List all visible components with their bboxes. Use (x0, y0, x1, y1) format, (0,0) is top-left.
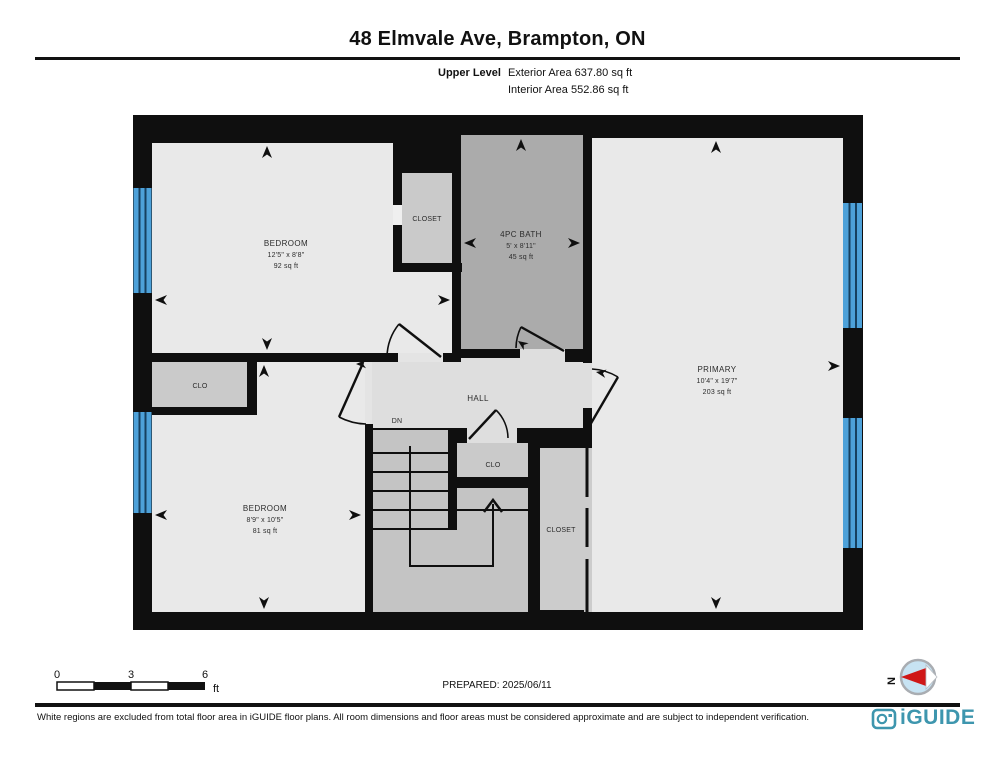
primary-dims: 10'4" x 19'7" (697, 378, 738, 385)
clo-stairs-name: CLO (486, 462, 501, 469)
bedroom1-name: BEDROOM (264, 239, 308, 248)
closet2-name: CLOSET (546, 527, 576, 534)
room-clo-stairs (457, 443, 528, 477)
room-hall (372, 358, 583, 428)
room-bedroom1 (152, 143, 393, 353)
room-bedroom2-strip (257, 362, 365, 415)
window-left-bottom (134, 412, 152, 513)
bath-name: 4PC BATH (500, 230, 542, 239)
scale-unit: ft (213, 683, 219, 695)
primary-area: 203 sq ft (703, 389, 732, 396)
window-left-top (134, 188, 152, 293)
compass-north-label: N (886, 677, 898, 685)
clo-bedroom2-name: CLO (193, 383, 208, 390)
footer-divider (35, 703, 960, 707)
scale-3: 3 (128, 669, 134, 681)
iguide-logo: iGUIDE (871, 706, 975, 730)
floor-plan: BEDROOM 12'5" x 8'8" 92 sq ft CLOSET 4PC… (0, 0, 995, 768)
floorplan-page: 48 Elmvale Ave, Brampton, ON Upper Level… (0, 0, 995, 768)
iguide-camera-icon (871, 706, 897, 730)
disclaimer-text: White regions are excluded from total fl… (37, 712, 809, 723)
bedroom1-dims: 12'5" x 8'8" (268, 252, 305, 259)
primary-name: PRIMARY (697, 365, 736, 374)
window-right-top (843, 203, 862, 328)
room-bath (461, 135, 583, 349)
door-opening-bedroom2 (365, 360, 372, 424)
prepared-date: PREPARED: 2025/06/11 (442, 680, 552, 691)
bedroom1-area: 92 sq ft (274, 263, 299, 270)
window-right-bottom (843, 418, 862, 548)
scale-0: 0 (54, 669, 60, 681)
iguide-brand-text: iGUIDE (900, 706, 975, 730)
hall-name: HALL (467, 394, 489, 403)
scale-bar: 0 3 6 ft (54, 669, 219, 695)
room-bedroom2 (152, 415, 365, 612)
bedroom2-dims: 8'9" x 10'5" (247, 517, 284, 524)
room-bedroom1-nook (393, 272, 452, 353)
stairs-dn-label: DN (392, 418, 403, 425)
room-primary (592, 138, 843, 612)
bath-dims: 5' x 8'11" (506, 243, 536, 250)
scale-6: 6 (202, 669, 208, 681)
compass-icon: N (886, 660, 937, 694)
bedroom2-area: 81 sq ft (253, 528, 278, 535)
closet1-name: CLOSET (412, 216, 442, 223)
bath-area: 45 sq ft (509, 254, 534, 261)
bedroom2-name: BEDROOM (243, 504, 287, 513)
